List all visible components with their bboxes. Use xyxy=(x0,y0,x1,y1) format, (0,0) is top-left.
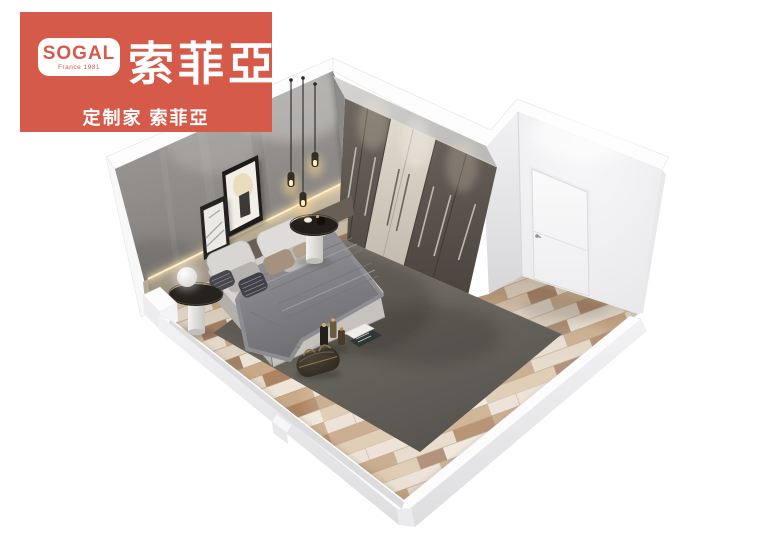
coffee-cup xyxy=(304,217,312,222)
brand-logo-box: SOGAL France 1981 xyxy=(38,38,120,76)
brand-origin: France 1981 xyxy=(38,65,120,72)
sphere-lamp xyxy=(173,263,201,291)
brand-name-cn: 索菲亞 xyxy=(128,28,278,94)
product-render-image: SOGAL France 1981 索菲亞 定制家 索菲亞 xyxy=(0,0,760,560)
brand-logo-card: SOGAL France 1981 索菲亞 定制家 索菲亞 xyxy=(20,12,272,132)
brand-tagline: 定制家 索菲亞 xyxy=(20,104,272,130)
brand-name-en: SOGAL xyxy=(38,44,120,63)
